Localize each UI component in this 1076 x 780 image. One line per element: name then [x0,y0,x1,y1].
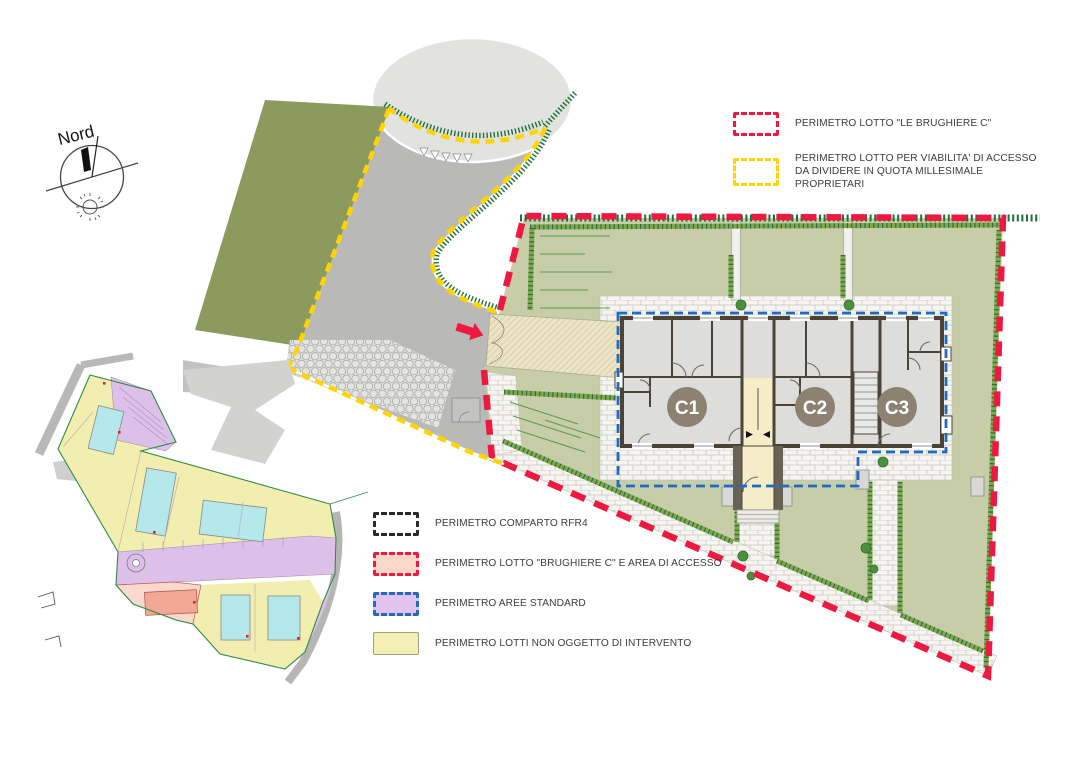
legend-row-aree-standard: PERIMETRO AREE STANDARD [373,592,731,616]
legend-row-viability-perimeter: PERIMETRO LOTTO PER VIABILITA' DI ACCESS… [733,152,1047,191]
unit-c1-label: C1 [675,398,700,419]
inset-lot-brughiere [116,582,201,624]
legend-areas: PERIMETRO COMPARTO RFR4 PERIMETRO LOTTO … [373,512,731,671]
unit-c2-label: C2 [803,398,827,419]
unit-c3-label: C3 [885,398,909,419]
north-needle-icon [92,136,98,177]
red-dashed-pink-swatch [373,552,419,576]
inset-parcels-yellow [58,375,336,552]
legend-label: PERIMETRO LOTTO PER VIABILITA' DI ACCESS… [795,152,1039,191]
legend-lot-perimeters: PERIMETRO LOTTO "LE BRUGHIERE C" PERIMET… [733,112,1047,207]
legend-label: PERIMETRO LOTTO "LE BRUGHIERE C" [795,117,991,130]
staircase [854,372,878,434]
legend-row-comparto: PERIMETRO COMPARTO RFR4 [373,512,731,536]
small-structure [452,398,480,422]
legend-label: PERIMETRO LOTTI NON OGGETTO DI INTERVENT… [435,637,691,650]
north-label: Nord [56,122,96,149]
north-compass: Nord [46,122,138,221]
legend-label: PERIMETRO COMPARTO RFR4 [435,517,588,530]
black-dashed-swatch [373,512,419,536]
yellow-fill-swatch [373,632,419,655]
legend-row-lotti-non-intervento: PERIMETRO LOTTI NON OGGETTO DI INTERVENT… [373,632,731,655]
red-dashed-swatch [733,112,779,136]
legend-row-lot-perimeter: PERIMETRO LOTTO "LE BRUGHIERE C" [733,112,1047,136]
inset-overview-plan [38,356,368,682]
legend-row-lotto-brughiere: PERIMETRO LOTTO "BRUGHIERE C" E AREA DI … [373,552,731,576]
blue-dashed-purple-swatch [373,592,419,616]
site-plan-page: C1 C2 C3 [0,0,1076,780]
legend-label: PERIMETRO LOTTO "BRUGHIERE C" E AREA DI … [435,557,722,570]
legend-label: PERIMETRO AREE STANDARD [435,597,586,610]
yellow-dashed-swatch [733,158,779,186]
